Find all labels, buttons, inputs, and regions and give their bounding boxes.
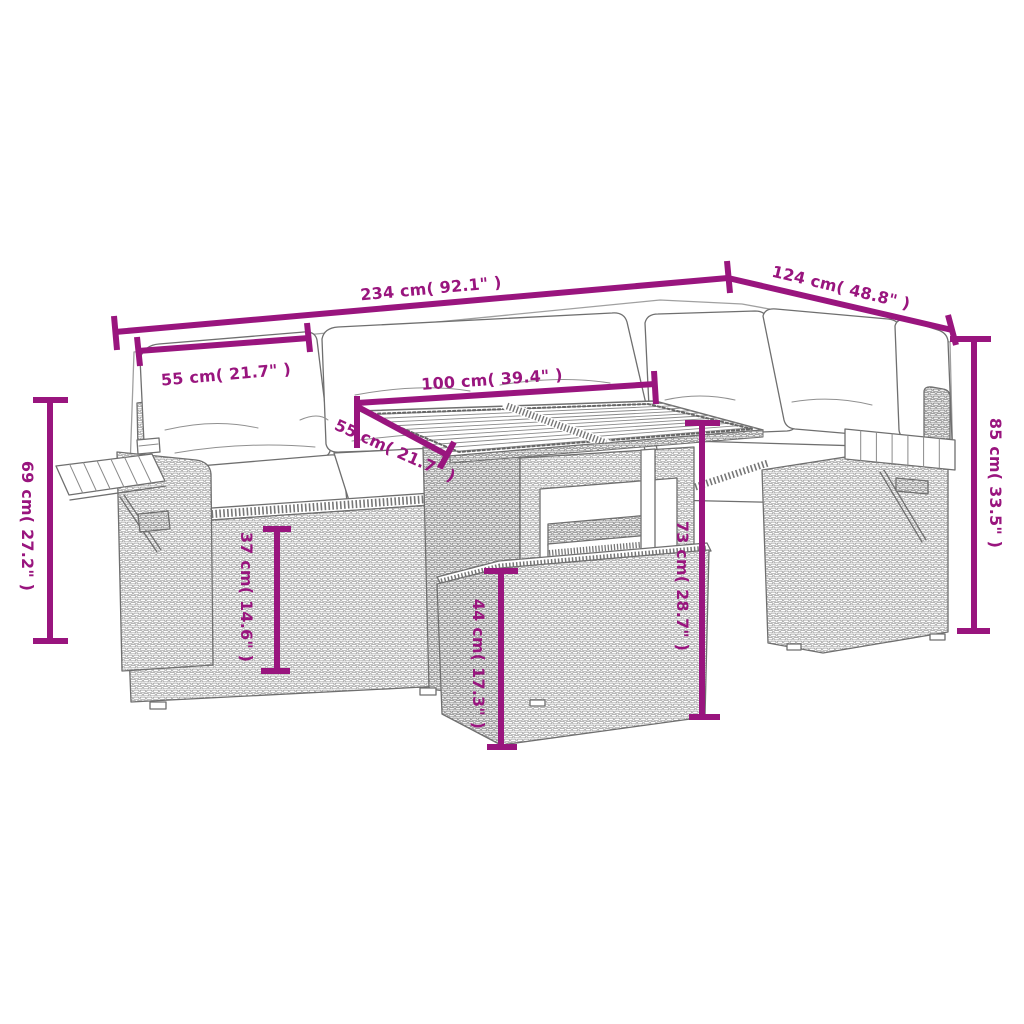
dim-label-footstool-height: 44 cm( 17.3" ) xyxy=(470,599,486,729)
dim-label-table-height: 73 cm( 28.7" ) xyxy=(674,521,690,651)
dim-label-back-height: 85 cm( 33.5" ) xyxy=(987,418,1003,548)
dim-line-tray-height xyxy=(33,400,68,641)
right-arm-post xyxy=(924,387,950,444)
dim-line-back-height xyxy=(950,339,991,631)
dim-label-tray-height: 69 cm( 27.2" ) xyxy=(19,461,35,591)
dimension-diagram: 234 cm( 92.1" ) 124 cm( 48.8" ) 85 cm( 3… xyxy=(0,0,1024,1024)
dim-label-seat-height: 37 cm( 14.6" ) xyxy=(238,532,254,662)
furniture-illustration xyxy=(0,0,1024,1024)
sofa-right-base xyxy=(762,441,948,653)
